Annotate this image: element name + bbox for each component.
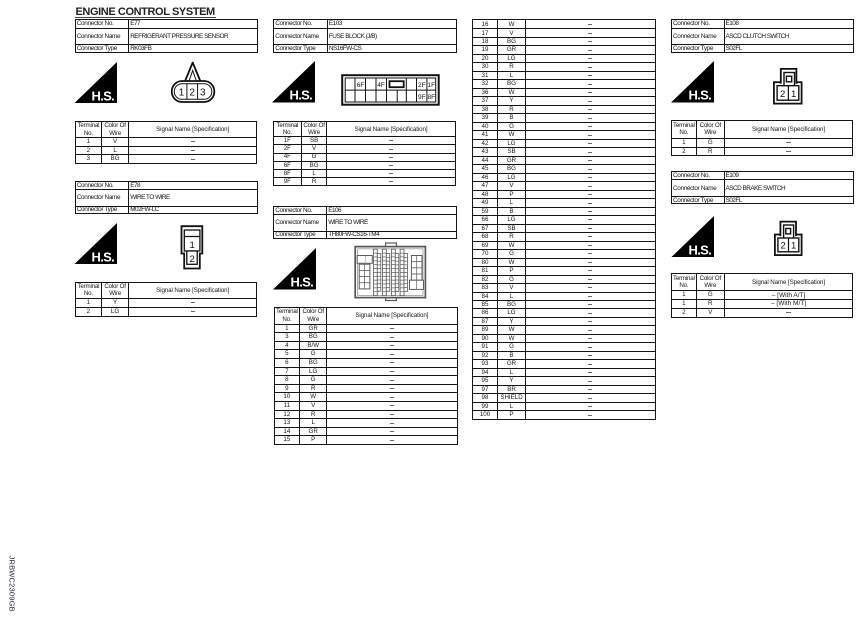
svg-text:4F: 4F bbox=[377, 81, 385, 88]
svg-text:2: 2 bbox=[190, 254, 195, 265]
svg-text:2: 2 bbox=[780, 88, 785, 99]
svg-text:H.S.: H.S. bbox=[92, 249, 115, 264]
svg-text:H.S.: H.S. bbox=[689, 242, 712, 257]
svg-text:1: 1 bbox=[179, 88, 185, 99]
svg-text:6F: 6F bbox=[357, 81, 365, 88]
svg-text:H.S.: H.S. bbox=[689, 87, 712, 102]
svg-text:2: 2 bbox=[781, 241, 786, 252]
svg-text:H.S.: H.S. bbox=[92, 88, 115, 103]
svg-text:2F: 2F bbox=[418, 81, 426, 88]
svg-text:8F: 8F bbox=[428, 94, 436, 101]
svg-text:1: 1 bbox=[791, 88, 796, 99]
svg-text:1: 1 bbox=[791, 241, 796, 252]
svg-text:3: 3 bbox=[200, 88, 206, 99]
svg-text:H.S.: H.S. bbox=[290, 87, 313, 102]
svg-text:2: 2 bbox=[189, 88, 195, 99]
svg-text:9F: 9F bbox=[418, 94, 426, 101]
svg-text:H.S.: H.S. bbox=[290, 274, 313, 289]
svg-text:1F: 1F bbox=[428, 81, 436, 88]
svg-text:1: 1 bbox=[190, 240, 195, 251]
